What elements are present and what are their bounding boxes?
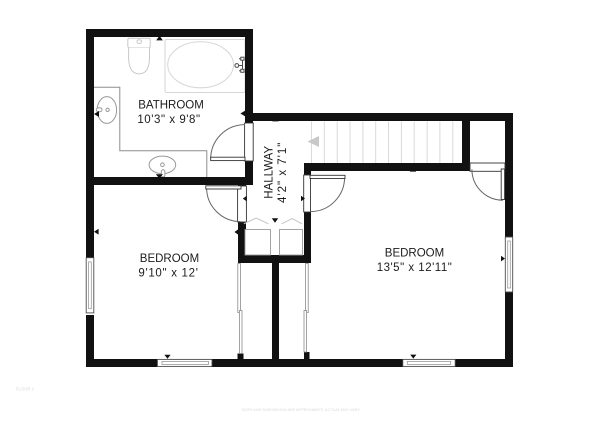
svg-text:13'5" x 12'11": 13'5" x 12'11" <box>377 262 453 274</box>
svg-text:SIZES AND DIMENSIONS ARE APPRO: SIZES AND DIMENSIONS ARE APPROXIMATE, AC… <box>242 408 361 412</box>
svg-text:BEDROOM: BEDROOM <box>385 247 444 259</box>
svg-text:BEDROOM: BEDROOM <box>140 253 199 265</box>
svg-text:HALLWAY: HALLWAY <box>264 146 276 199</box>
svg-text:4'2" x 7'1": 4'2" x 7'1" <box>277 142 289 203</box>
svg-text:10'3" x 9'8": 10'3" x 9'8" <box>137 114 200 126</box>
svg-text:BATHROOM: BATHROOM <box>138 100 204 112</box>
svg-text:9'10" x 12': 9'10" x 12' <box>138 267 198 279</box>
svg-text:FLOOR 2: FLOOR 2 <box>16 387 35 392</box>
